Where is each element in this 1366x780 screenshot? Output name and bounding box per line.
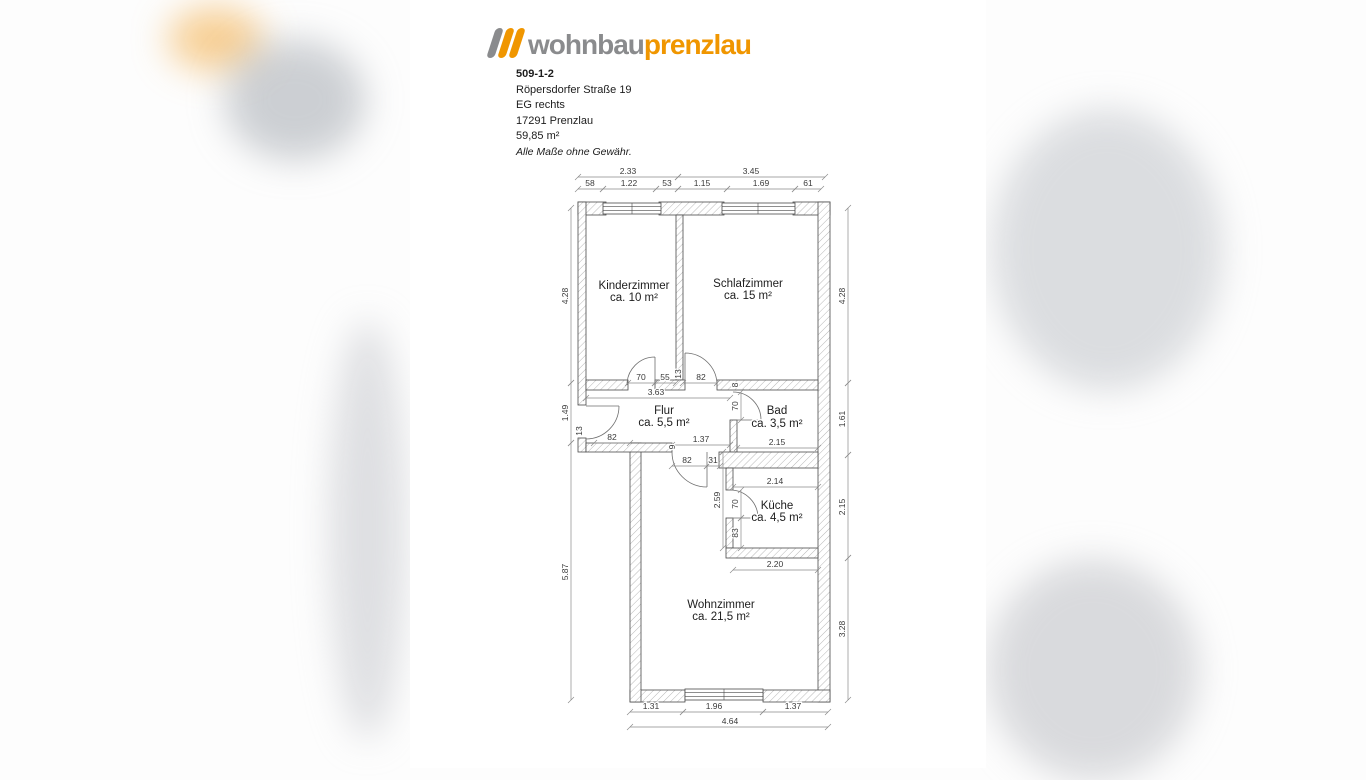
room-label: ca. 15 m²: [724, 290, 772, 302]
room-label: Schlafzimmer: [713, 278, 783, 290]
dimension-label: 4.28: [560, 287, 570, 304]
dimension-label: 9: [667, 444, 677, 449]
dimension-label: 1.49: [560, 404, 570, 421]
dimension-label: 2.15: [837, 498, 847, 515]
dimension-label: 3.45: [743, 166, 760, 176]
dimension-label: 70: [730, 499, 740, 509]
dimension-label: 82: [696, 372, 706, 382]
room-label: Bad: [767, 405, 787, 417]
dimension-label: 13: [574, 426, 584, 436]
dimension-label: 82: [682, 455, 692, 465]
room-label: ca. 10 m²: [610, 292, 658, 304]
dimension-label: 4.28: [837, 287, 847, 304]
dimension-label: 8: [730, 382, 740, 387]
dimension-label: 1.15: [694, 178, 711, 188]
dimension-label: 13: [673, 369, 683, 379]
dimension-label: 70: [730, 401, 740, 411]
dimension-label: 1.61: [837, 410, 847, 427]
room-label: Wohnzimmer: [687, 599, 755, 611]
dimension-label: 2.14: [767, 476, 784, 486]
dimension-label: 1.22: [621, 178, 638, 188]
dimension-label: 53: [662, 178, 672, 188]
dimension-label: 2.59: [712, 491, 722, 508]
floorplan-drawing: 2.333.45581.22531.151.69614.281.495.874.…: [0, 0, 1366, 768]
room-label: Flur: [654, 405, 674, 417]
room-label: Kinderzimmer: [599, 280, 670, 292]
room-label: ca. 21,5 m²: [692, 611, 750, 623]
dimension-label: 1.31: [643, 701, 660, 711]
dimension-label: 1.37: [785, 701, 802, 711]
room-label: Küche: [761, 500, 794, 512]
dimension-label: 1.69: [753, 178, 770, 188]
dimension-label: 2.33: [620, 166, 637, 176]
dimension-label: 31: [708, 455, 718, 465]
room-label: ca. 5,5 m²: [638, 417, 689, 429]
dimension-label: 2.20: [767, 559, 784, 569]
dimension-label: 61: [803, 178, 813, 188]
dimension-line: [680, 709, 766, 715]
room-label: ca. 3,5 m²: [751, 418, 802, 430]
dimension-label: 5.87: [560, 563, 570, 580]
dimension-label: 70: [636, 372, 646, 382]
window-schlafzimmer: [722, 203, 795, 214]
dimension-label: 4.64: [722, 716, 739, 726]
dimension-label: 3.28: [837, 620, 847, 637]
dimension-label: 82: [607, 432, 617, 442]
window-kinderzimmer: [603, 203, 661, 214]
dimension-label: 1.37: [693, 434, 710, 444]
dimension-label: 3.63: [648, 387, 665, 397]
window-wohnzimmer: [685, 689, 763, 700]
room-label: ca. 4,5 m²: [751, 512, 802, 524]
dimension-label: 2.15: [769, 437, 786, 447]
dimension-label: 1.96: [706, 701, 723, 711]
dimension-label: 55: [660, 372, 670, 382]
dimension-label: 58: [585, 178, 595, 188]
dimension-label: 83: [730, 528, 740, 538]
